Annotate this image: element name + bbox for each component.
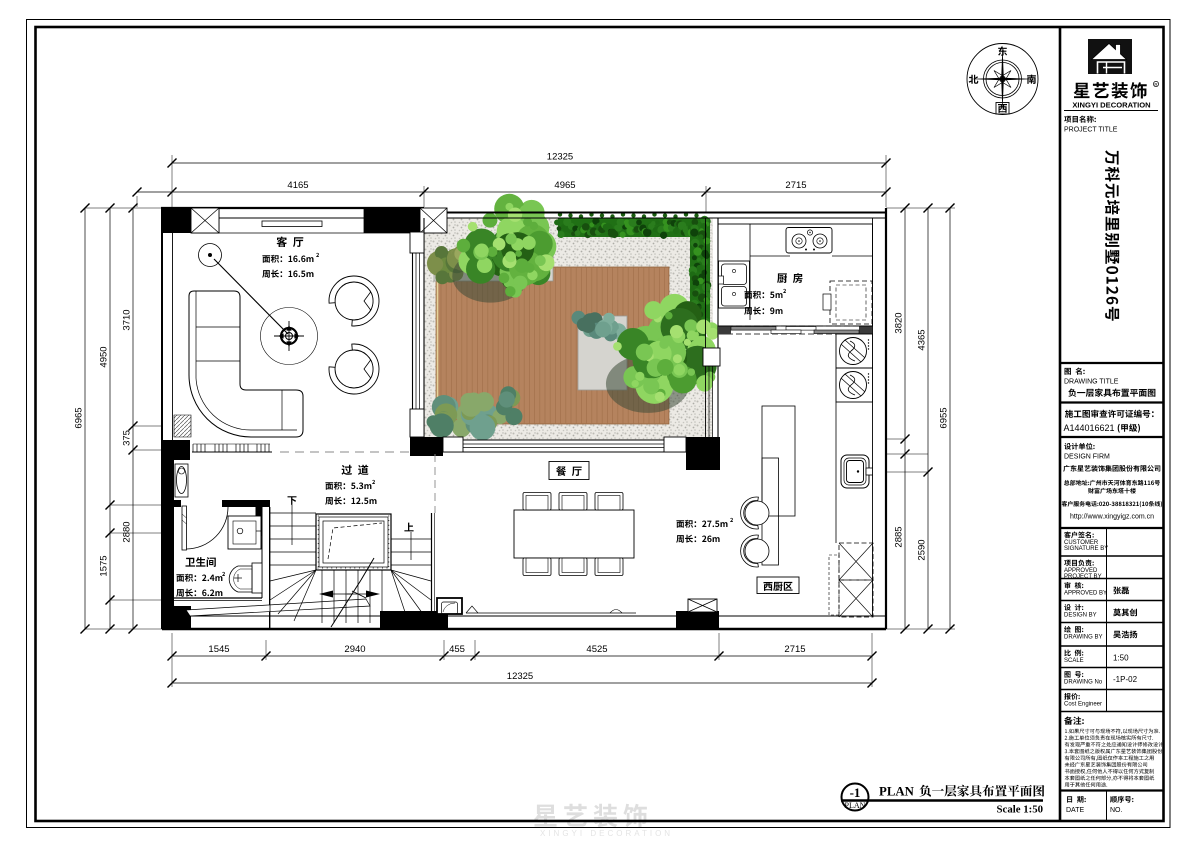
svg-text:2590: 2590 bbox=[917, 539, 928, 560]
svg-text:2880: 2880 bbox=[122, 521, 133, 542]
svg-text:DESIGN FIRM: DESIGN FIRM bbox=[1064, 454, 1110, 461]
svg-text:12325: 12325 bbox=[547, 152, 573, 163]
svg-text:4950: 4950 bbox=[99, 346, 110, 367]
svg-text:SCALE: SCALE bbox=[1064, 658, 1084, 664]
svg-text:DRAWING No: DRAWING No bbox=[1064, 679, 1103, 685]
svg-text:2940: 2940 bbox=[344, 644, 365, 655]
svg-text:DESIGN BY: DESIGN BY bbox=[1064, 612, 1097, 618]
svg-text:1:50: 1:50 bbox=[1113, 654, 1129, 663]
svg-text:1545: 1545 bbox=[208, 644, 229, 655]
svg-text:3820: 3820 bbox=[894, 312, 905, 333]
svg-text:XINGYI DECORATION: XINGYI DECORATION bbox=[1072, 101, 1150, 110]
svg-text:2715: 2715 bbox=[784, 644, 805, 655]
svg-text:1575: 1575 bbox=[99, 555, 110, 576]
svg-text:DRAWING BY: DRAWING BY bbox=[1064, 634, 1102, 640]
svg-text:-1P-02: -1P-02 bbox=[1113, 675, 1138, 684]
svg-text:DATE: DATE bbox=[1066, 807, 1084, 814]
svg-text:375: 375 bbox=[122, 430, 133, 446]
svg-text:455: 455 bbox=[449, 644, 465, 655]
svg-text:DRAWING TITLE: DRAWING TITLE bbox=[1064, 379, 1119, 386]
svg-text:PLAN: PLAN bbox=[879, 785, 915, 799]
svg-text:4365: 4365 bbox=[917, 329, 928, 350]
svg-text:4525: 4525 bbox=[586, 644, 607, 655]
svg-text:A144016621: A144016621 bbox=[1063, 423, 1114, 433]
svg-text:http://www.xingyigz.com.cn: http://www.xingyigz.com.cn bbox=[1070, 514, 1154, 521]
svg-text:2885: 2885 bbox=[894, 526, 905, 547]
svg-text:6965: 6965 bbox=[74, 407, 85, 428]
svg-text:PLAN: PLAN bbox=[845, 801, 866, 810]
svg-text:3710: 3710 bbox=[122, 309, 133, 330]
svg-text:PROJECT BY: PROJECT BY bbox=[1064, 574, 1102, 580]
svg-text:-1: -1 bbox=[850, 785, 861, 800]
svg-text:6955: 6955 bbox=[939, 407, 950, 428]
svg-text:NO.: NO. bbox=[1110, 807, 1123, 814]
svg-text:2715: 2715 bbox=[785, 180, 806, 191]
svg-text:XINGYI DECORATION: XINGYI DECORATION bbox=[540, 829, 673, 838]
svg-text:4965: 4965 bbox=[554, 180, 575, 191]
svg-text:Scale 1:50: Scale 1:50 bbox=[997, 804, 1043, 816]
svg-text:Cost Engineer: Cost Engineer bbox=[1064, 701, 1102, 707]
svg-text:PROJECT TITLE: PROJECT TITLE bbox=[1064, 127, 1118, 134]
svg-text:APPROVED BY: APPROVED BY bbox=[1064, 590, 1107, 596]
svg-text:12325: 12325 bbox=[507, 671, 533, 682]
svg-text:SIGNATURE BY: SIGNATURE BY bbox=[1064, 546, 1108, 552]
svg-text:4165: 4165 bbox=[287, 180, 308, 191]
